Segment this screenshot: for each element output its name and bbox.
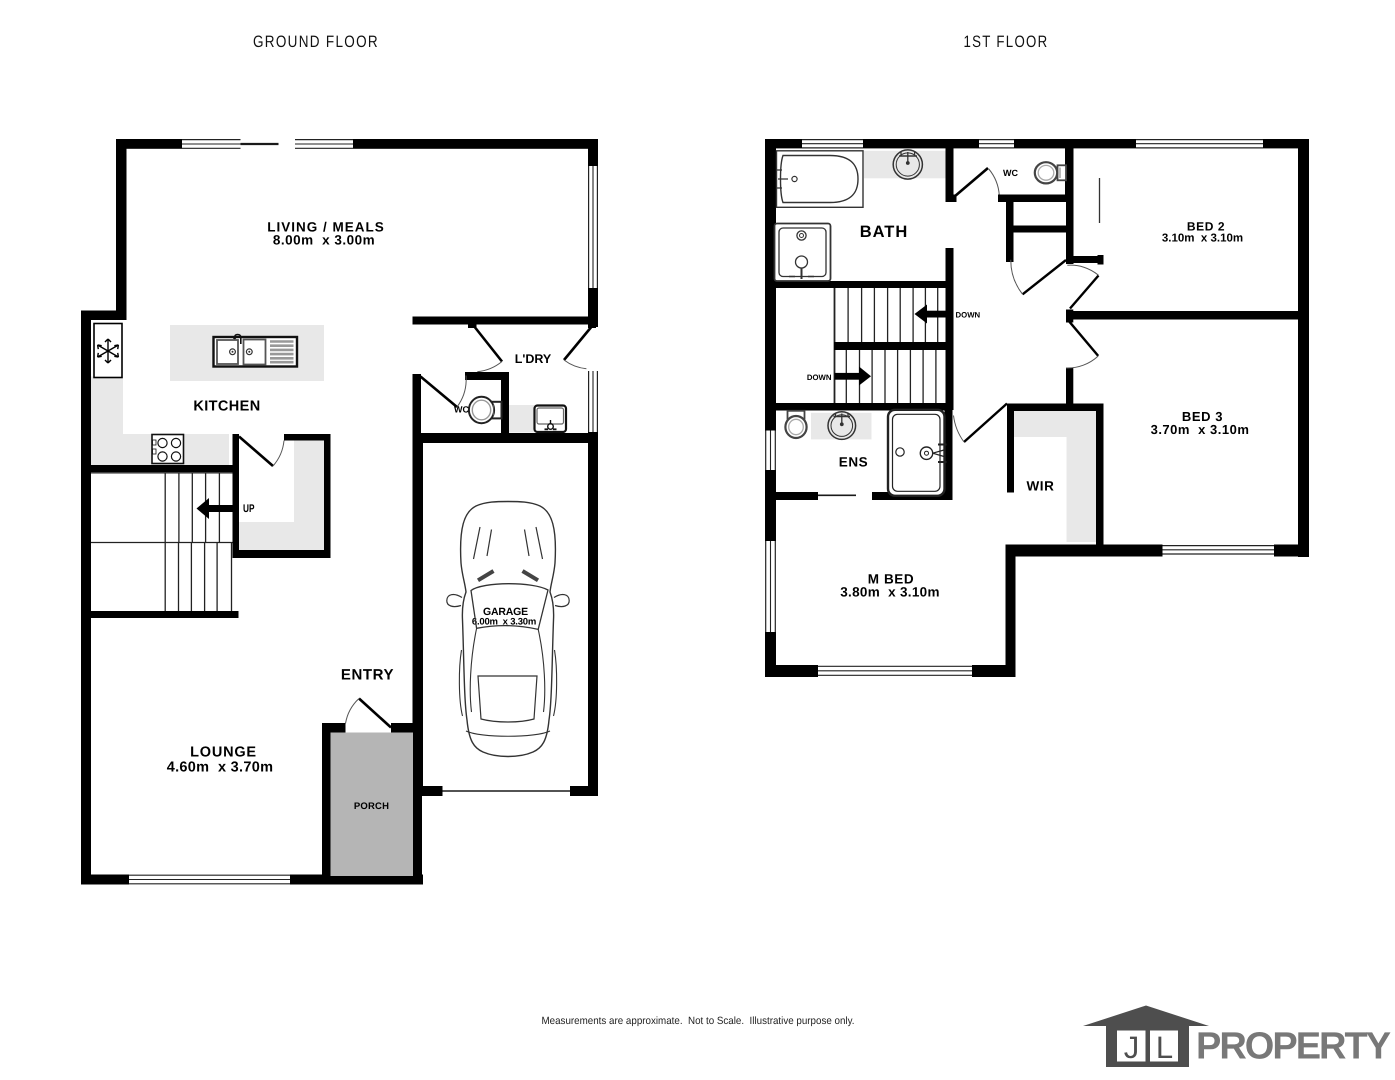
svg-text:KITCHEN: KITCHEN bbox=[193, 399, 260, 415]
svg-text:PROPERTY: PROPERTY bbox=[1196, 1026, 1391, 1068]
svg-text:3.10m x 3.10m: 3.10m x 3.10m bbox=[1162, 233, 1243, 245]
svg-text:ENTRY: ENTRY bbox=[341, 667, 394, 684]
svg-text:BED 2: BED 2 bbox=[1187, 220, 1225, 234]
svg-text:PORCH: PORCH bbox=[354, 801, 389, 812]
svg-text:DOWN: DOWN bbox=[956, 311, 981, 320]
svg-text:8.00m x 3.00m: 8.00m x 3.00m bbox=[273, 233, 375, 248]
svg-text:WC: WC bbox=[1003, 168, 1018, 178]
svg-text:Measurements are approximate.: Measurements are approximate. Not to Sca… bbox=[542, 1015, 855, 1027]
svg-text:3.80m x 3.10m: 3.80m x 3.10m bbox=[840, 585, 940, 600]
svg-text:4.60m x 3.70m: 4.60m x 3.70m bbox=[167, 760, 274, 776]
svg-text:GROUND FLOOR: GROUND FLOOR bbox=[253, 33, 379, 51]
svg-text:L'DRY: L'DRY bbox=[515, 352, 552, 366]
svg-text:L: L bbox=[1156, 1030, 1173, 1065]
svg-text:DOWN: DOWN bbox=[807, 373, 832, 382]
svg-text:WIR: WIR bbox=[1026, 479, 1054, 494]
svg-text:J: J bbox=[1124, 1030, 1140, 1065]
svg-text:LOUNGE: LOUNGE bbox=[190, 745, 257, 761]
svg-text:1ST FLOOR: 1ST FLOOR bbox=[964, 33, 1049, 51]
svg-text:WC: WC bbox=[454, 405, 469, 415]
svg-text:UP: UP bbox=[243, 503, 255, 515]
svg-text:3.70m x 3.10m: 3.70m x 3.10m bbox=[1151, 422, 1250, 437]
svg-text:ENS: ENS bbox=[839, 455, 869, 470]
svg-text:BATH: BATH bbox=[860, 223, 909, 241]
